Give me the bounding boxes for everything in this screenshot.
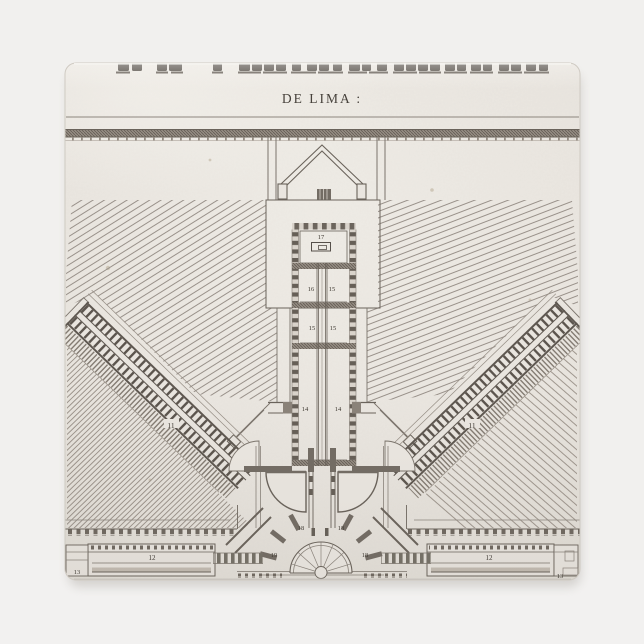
svg-text:16: 16	[308, 286, 315, 293]
svg-text:15: 15	[330, 325, 337, 332]
svg-text:DE LIMA :: DE LIMA :	[282, 91, 362, 106]
svg-text:15: 15	[329, 286, 336, 293]
svg-text:15: 15	[309, 325, 316, 332]
svg-text:17: 17	[318, 234, 325, 241]
